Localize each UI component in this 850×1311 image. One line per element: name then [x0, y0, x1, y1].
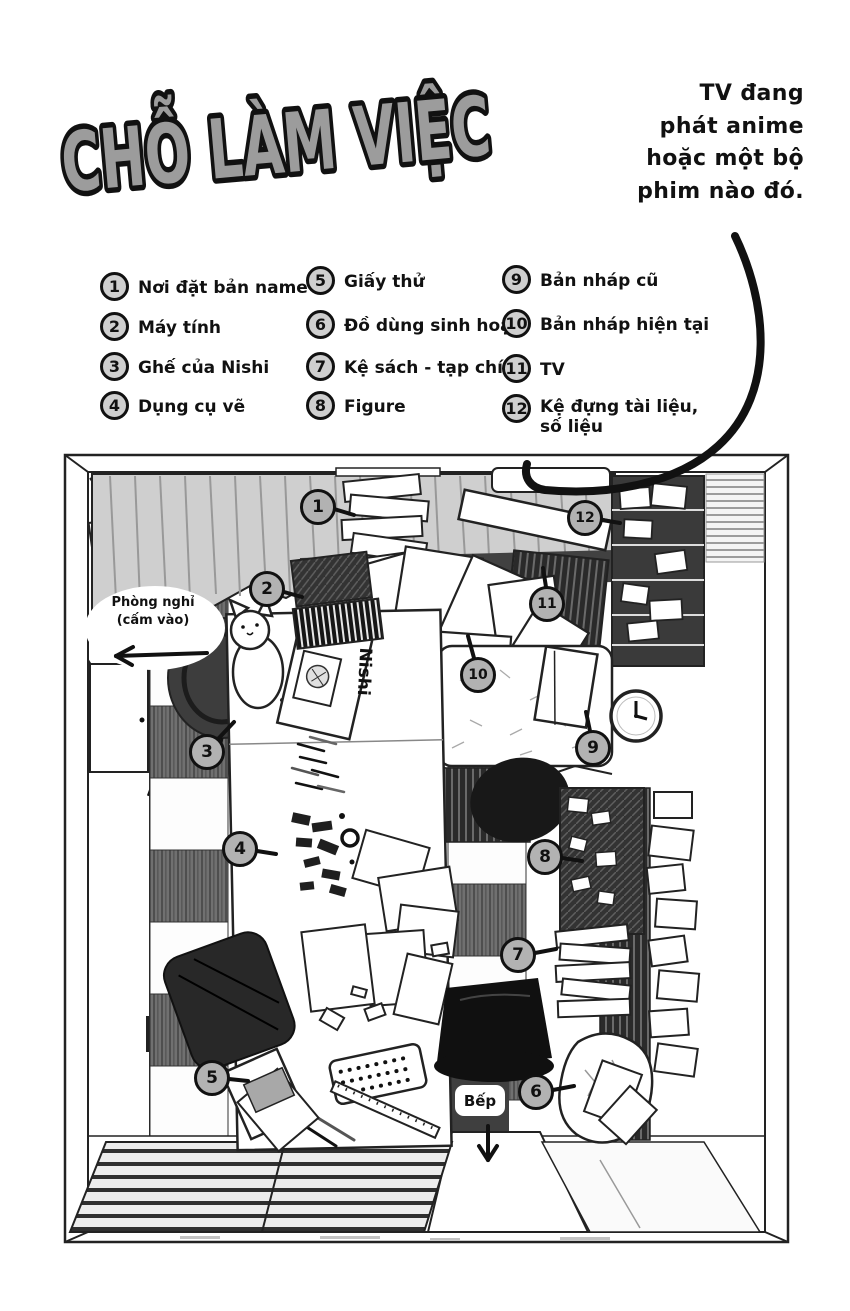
legend-item-6: 6 Đồ dùng sinh hoạt	[306, 310, 520, 339]
magazine-pile	[555, 924, 630, 1017]
wall-clock	[611, 691, 661, 741]
legend-label: Bản nháp cũ	[540, 268, 658, 291]
legend-number: 11	[502, 354, 531, 383]
tv-note: TV đang phát anime hoặc một bộ phim nào …	[637, 78, 804, 208]
legend-number: 9	[502, 265, 531, 294]
legend-item-4: 4 Dụng cụ vẽ	[100, 391, 245, 420]
legend-number: 2	[100, 312, 129, 341]
legend-item-12: 12 Kệ đựng tài liệu, số liệu	[502, 394, 698, 438]
callout-4: 4	[222, 831, 258, 867]
legend-label: Đồ dùng sinh hoạt	[344, 313, 520, 336]
legend-label: Bản nháp hiện tại	[540, 312, 709, 335]
legend-label: Figure	[344, 394, 406, 417]
legend-number: 1	[100, 272, 129, 301]
legend-item-11: 11 TV	[502, 354, 565, 383]
legend-label: Ghế của Nishi	[138, 355, 269, 378]
callout-6: 6	[518, 1074, 554, 1110]
slatted-floor	[70, 1142, 760, 1240]
legend-item-1: 1 Nơi đặt bản name	[100, 272, 308, 301]
callout-8: 8	[527, 839, 563, 875]
legend-item-9: 9 Bản nháp cũ	[502, 265, 658, 294]
tv-note-line: phim nào đó.	[637, 176, 804, 209]
callout-2: 2	[249, 571, 285, 607]
callout-1: 1	[300, 489, 336, 525]
callout-5: 5	[194, 1060, 230, 1096]
page-title-art: CHỖ LÀM VIỆC	[38, 28, 518, 253]
legend-label: Kệ đựng tài liệu, số liệu	[540, 394, 698, 438]
legend-number: 8	[306, 391, 335, 420]
legend-label: Máy tính	[138, 315, 221, 338]
tv-note-line: TV đang	[637, 78, 804, 111]
callout-10: 10	[460, 657, 496, 693]
kitchen-label: Bếp	[455, 1085, 505, 1116]
callout-3: 3	[189, 734, 225, 770]
rest-room-door	[90, 664, 148, 772]
legend-number: 12	[502, 394, 531, 423]
legend-label: Kệ sách - tạp chí	[344, 355, 503, 378]
legend-label: Nơi đặt bản name	[138, 275, 308, 298]
legend-label: TV	[540, 357, 565, 380]
legend-number: 5	[306, 266, 335, 295]
page-title: CHỖ LÀM VIỆC	[57, 66, 495, 211]
callout-7: 7	[500, 937, 536, 973]
callout-11: 11	[529, 586, 565, 622]
office-chair-bottom	[434, 978, 554, 1082]
legend-item-5: 5 Giấy thử	[306, 266, 425, 295]
legend-label: Dụng cụ vẽ	[138, 394, 245, 417]
window-blinds	[706, 474, 764, 562]
door-knob	[140, 718, 145, 723]
legend-item-3: 3 Ghế của Nishi	[100, 352, 269, 381]
legend-label: Giấy thử	[344, 269, 425, 292]
household-bag	[559, 1033, 656, 1144]
legend-number: 7	[306, 352, 335, 381]
nishi-sign-text: Nishi	[353, 647, 375, 696]
laptop	[287, 551, 383, 649]
tv-note-line: phát anime	[637, 111, 804, 144]
tv-note-line: hoặc một bộ	[637, 143, 804, 176]
legend-number: 3	[100, 352, 129, 381]
legend-item-7: 7 Kệ sách - tạp chí	[306, 352, 503, 381]
rest-room-label: Phòng nghỉ (cấm vào)	[90, 594, 216, 629]
legend-item-10: 10 Bản nháp hiện tại	[502, 309, 709, 338]
legend-number: 4	[100, 391, 129, 420]
legend-item-8: 8 Figure	[306, 391, 406, 420]
manga-page: CHỖ LÀM VIỆC TV đang phát anime hoặc một…	[0, 0, 850, 1311]
callout-9: 9	[575, 730, 611, 766]
callout-12: 12	[567, 500, 603, 536]
legend-number: 6	[306, 310, 335, 339]
legend-item-2: 2 Máy tính	[100, 312, 221, 341]
legend-number: 10	[502, 309, 531, 338]
